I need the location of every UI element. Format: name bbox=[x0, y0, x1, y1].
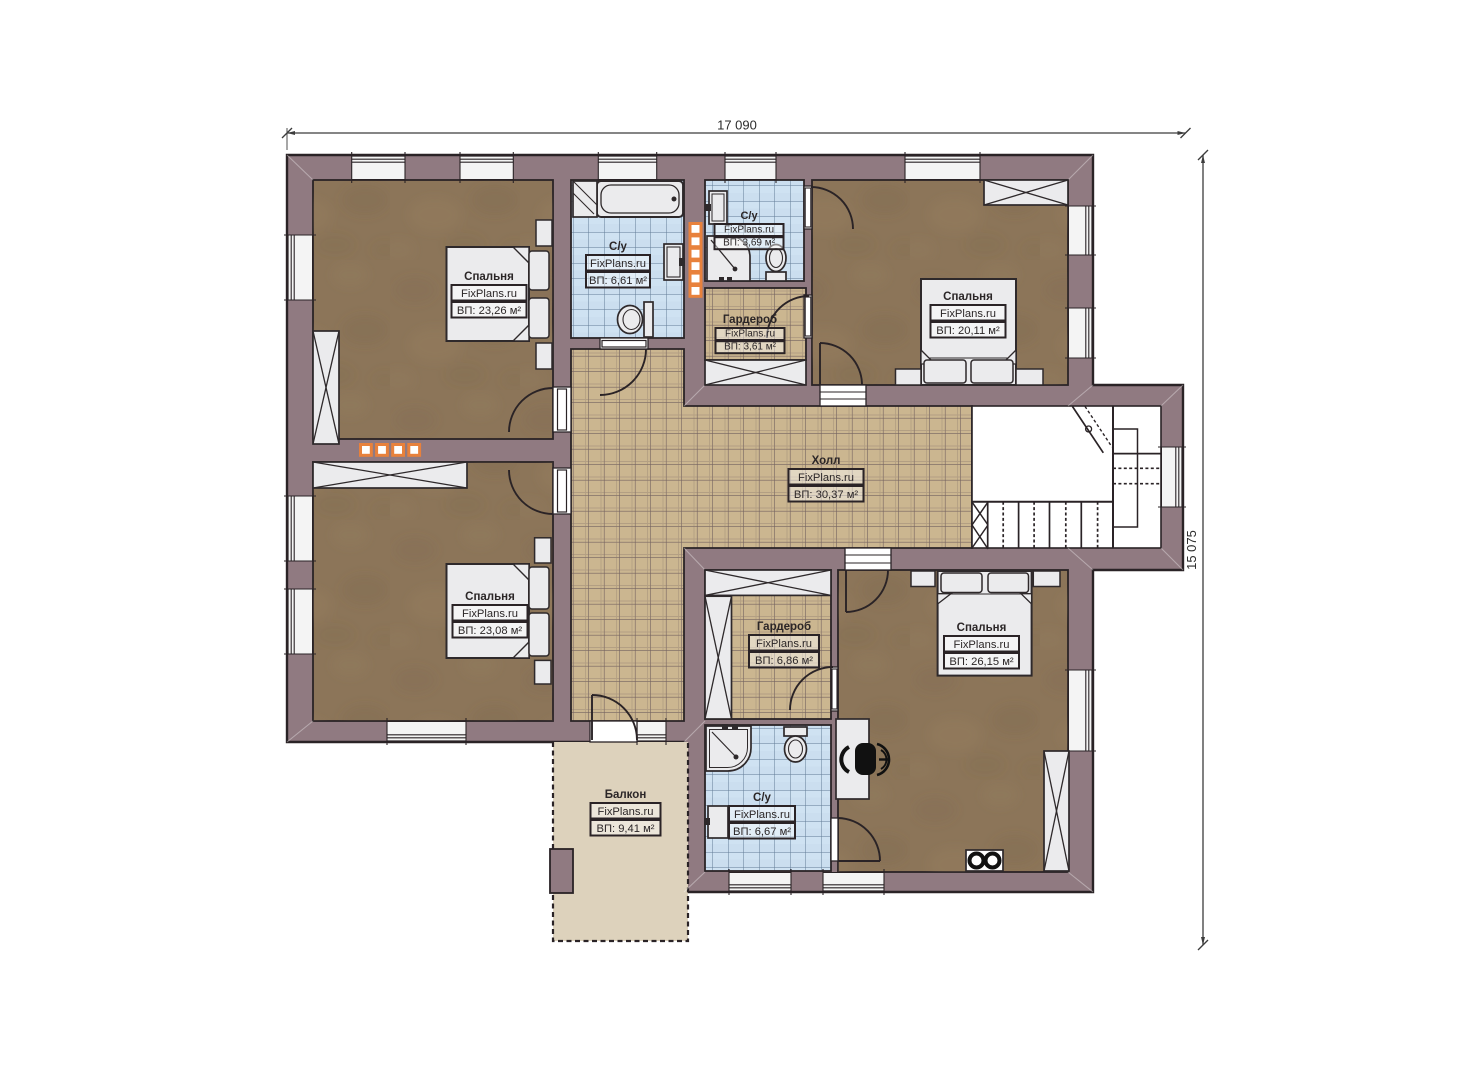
svg-text:Холл: Холл bbox=[812, 455, 841, 467]
svg-text:FixPlans.ru: FixPlans.ru bbox=[940, 308, 996, 320]
svg-text:Спальня: Спальня bbox=[957, 622, 1007, 634]
svg-text:Спальня: Спальня bbox=[464, 271, 514, 283]
svg-text:ВП: 20,11 м²: ВП: 20,11 м² bbox=[936, 325, 1000, 337]
svg-text:15 075: 15 075 bbox=[1184, 530, 1199, 570]
svg-text:С/у: С/у bbox=[609, 241, 628, 253]
svg-text:Спальня: Спальня bbox=[465, 591, 515, 603]
svg-text:ВП: 6,86 м²: ВП: 6,86 м² bbox=[755, 655, 813, 667]
svg-text:ВП: 26,15 м²: ВП: 26,15 м² bbox=[949, 656, 1014, 668]
svg-text:ВП: 6,67 м²: ВП: 6,67 м² bbox=[733, 826, 791, 838]
svg-text:ВП: 23,08 м²: ВП: 23,08 м² bbox=[458, 625, 523, 637]
svg-text:ВП: 3,69 м²: ВП: 3,69 м² bbox=[723, 238, 776, 249]
svg-text:FixPlans.ru: FixPlans.ru bbox=[954, 639, 1010, 651]
svg-text:ВП: 30,37 м²: ВП: 30,37 м² bbox=[794, 489, 859, 501]
svg-text:FixPlans.ru: FixPlans.ru bbox=[461, 288, 517, 300]
svg-text:FixPlans.ru: FixPlans.ru bbox=[734, 809, 790, 821]
svg-text:FixPlans.ru: FixPlans.ru bbox=[724, 225, 774, 236]
svg-text:FixPlans.ru: FixPlans.ru bbox=[590, 258, 646, 270]
svg-text:17 090: 17 090 bbox=[717, 118, 757, 133]
svg-text:С/у: С/у bbox=[740, 210, 758, 222]
svg-text:FixPlans.ru: FixPlans.ru bbox=[756, 638, 812, 650]
svg-text:ВП: 23,26 м²: ВП: 23,26 м² bbox=[457, 305, 522, 317]
svg-text:ВП: 9,41 м²: ВП: 9,41 м² bbox=[596, 823, 654, 835]
svg-text:С/у: С/у bbox=[753, 792, 772, 804]
svg-text:FixPlans.ru: FixPlans.ru bbox=[798, 472, 854, 484]
svg-text:ВП: 3,61 м²: ВП: 3,61 м² bbox=[724, 342, 777, 353]
svg-text:Гардероб: Гардероб bbox=[757, 621, 811, 633]
svg-text:FixPlans.ru: FixPlans.ru bbox=[725, 329, 775, 340]
svg-text:Гардероб: Гардероб bbox=[723, 314, 777, 326]
svg-text:ВП: 6,61 м²: ВП: 6,61 м² bbox=[589, 275, 647, 287]
svg-text:FixPlans.ru: FixPlans.ru bbox=[462, 608, 518, 620]
svg-text:Спальня: Спальня bbox=[943, 291, 993, 303]
svg-text:FixPlans.ru: FixPlans.ru bbox=[598, 806, 654, 818]
svg-text:Балкон: Балкон bbox=[605, 789, 647, 801]
